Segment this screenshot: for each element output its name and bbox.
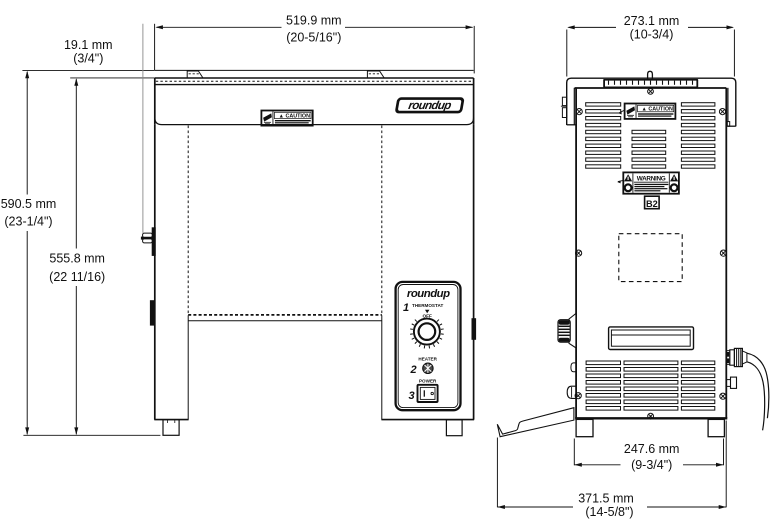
svg-text:273.1 mm: 273.1 mm <box>624 14 680 28</box>
svg-text:1: 1 <box>403 302 409 314</box>
svg-text:(10-3/4): (10-3/4) <box>630 27 674 41</box>
svg-text:(3/4"): (3/4") <box>73 52 103 66</box>
svg-text:(14-5/8"): (14-5/8") <box>585 505 633 519</box>
svg-text:▲ CAUTION: ▲ CAUTION <box>279 114 310 120</box>
svg-text:POWER: POWER <box>419 379 437 384</box>
svg-text:555.8 mm: 555.8 mm <box>49 252 105 266</box>
svg-text:2: 2 <box>409 364 416 376</box>
svg-text:247.6 mm: 247.6 mm <box>624 442 680 456</box>
svg-text:519.9 mm: 519.9 mm <box>286 14 342 28</box>
svg-text:590.5 mm: 590.5 mm <box>1 197 57 211</box>
svg-text:THERMOSTAT: THERMOSTAT <box>412 303 443 308</box>
svg-text:▲ CAUTION: ▲ CAUTION <box>642 107 673 113</box>
svg-text:(22 11/16): (22 11/16) <box>49 270 105 284</box>
svg-text:371.5 mm: 371.5 mm <box>578 492 634 506</box>
svg-text:roundup: roundup <box>407 99 452 112</box>
svg-text:3: 3 <box>408 390 414 402</box>
svg-text:(23-1/4"): (23-1/4") <box>4 215 52 229</box>
svg-text:B2: B2 <box>646 199 658 209</box>
svg-text:(9-3/4"): (9-3/4") <box>631 458 672 472</box>
svg-text:WARNING: WARNING <box>637 175 666 182</box>
svg-text:19.1 mm: 19.1 mm <box>64 38 113 52</box>
svg-text:HEATER: HEATER <box>418 357 437 362</box>
svg-text:roundup: roundup <box>407 288 450 300</box>
svg-text:(20-5/16"): (20-5/16") <box>286 31 341 45</box>
